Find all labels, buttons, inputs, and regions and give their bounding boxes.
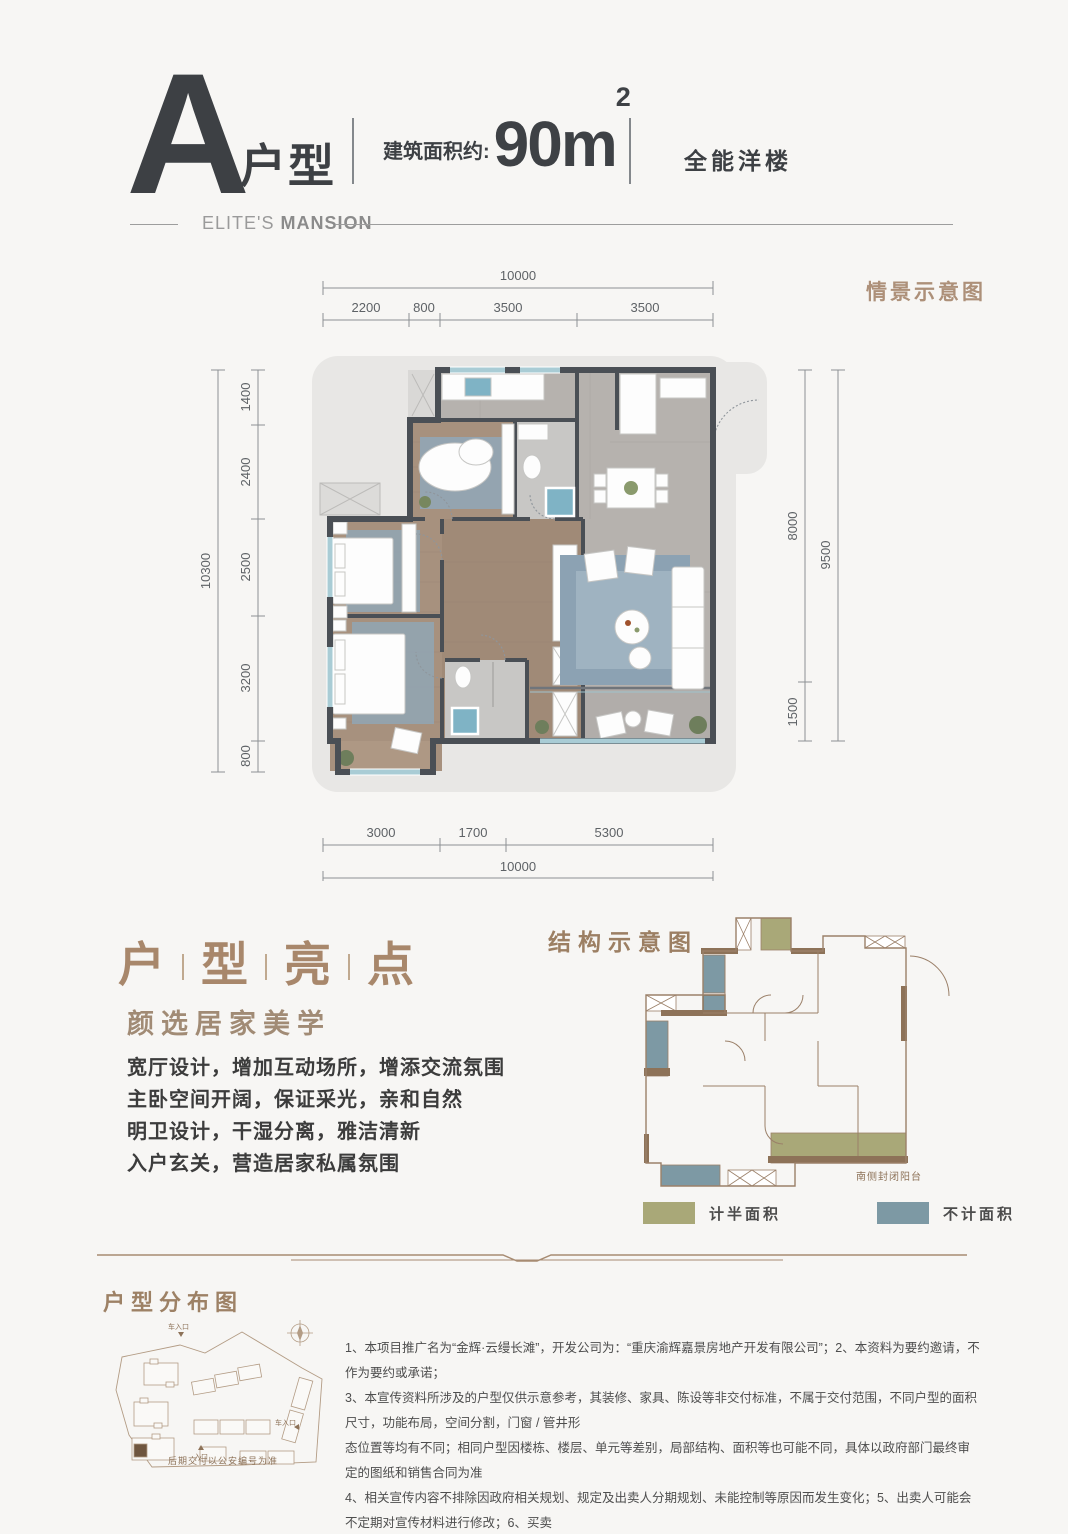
site-plan-svg: 车入口 车入口 入口 [92,1316,342,1468]
scene-label: 情景示意图 [866,276,986,306]
dim-top-3: 3500 [494,300,523,315]
disclaimer-line: 态位置等均有不同；相同户型因楼栋、楼层、单元等差别，局部结构、面积等也可能不同，… [345,1436,981,1486]
brand-line-right [335,224,953,225]
entry-label-right: 车入口 [275,1418,296,1427]
brand-light: ELITE'S [202,213,280,233]
structure-thick-walls [644,948,908,1163]
legend-item-half-area: 计半面积 [643,1202,781,1224]
title-separator [265,954,267,980]
unit-letter: A [126,64,246,205]
section-divider [95,1249,970,1265]
legend-swatch-half-area [643,1202,695,1224]
dim-right-2: 1500 [785,698,800,727]
disclaimer-line: 4、相关宣传内容不排除因政府相关规划、规定及出卖人分期规划、未能控制等原因而发生… [345,1486,981,1534]
dim-left-3: 2500 [238,553,253,582]
dim-left-total: 10300 [198,553,213,589]
dim-top-2: 800 [413,300,435,315]
dim-bottom-3: 5300 [595,825,624,840]
title-separator [182,954,184,980]
highlights-title-char: 亮 [284,943,331,990]
legend-item-excluded-area: 不计面积 [877,1202,1015,1224]
header-tagline: 全能洋楼 [684,142,792,176]
floor-plan-svg: 10000 2200 800 3500 3500 3000 1700 5300 … [180,262,870,882]
site-buildings [132,1359,313,1464]
living-room-furniture [560,546,704,689]
brochure-page: A 户型 建筑面积约: 90m2 全能洋楼 ELITE'S MANSION 情景… [0,0,1068,1534]
area-prefix: 建筑面积约: [383,135,490,176]
dim-right-1: 8000 [785,512,800,541]
disclaimer-line: 3、本宣传资料所涉及的户型仅供示意参考，其装修、家具、陈设等非交付标准，不属于交… [345,1386,981,1436]
entry-arrow-top [178,1332,184,1337]
structure-legend: 计半面积 不计面积 [643,1202,1015,1224]
distribution-title: 户型分布图 [103,1285,243,1317]
dim-bottom-2: 1700 [459,825,488,840]
structure-area-fills [646,918,906,1186]
dim-bottom-total: 10000 [500,859,536,874]
bedroom-a-furniture [419,424,514,514]
area-superscript: 2 [616,82,629,112]
dim-left-2: 2400 [238,458,253,487]
dim-top-1: 2200 [352,300,381,315]
highlights-list: 宽厅设计，增加互动场所，增添交流氛围 主卧空间开阔，保证采光，亲和自然 明卫设计… [127,1052,567,1180]
dim-left-1: 1400 [238,383,253,412]
site-entry-labels: 车入口 车入口 入口 [168,1322,299,1461]
header-divider-1 [352,118,354,184]
area-group: 建筑面积约: 90m2 [383,112,629,176]
dim-left-4: 3200 [238,664,253,693]
structure-interior-lines [703,951,949,1156]
unit-type-label: 户型 [240,130,336,196]
area-value: 90m2 [494,112,629,176]
brand-bold: MANSION [280,213,372,233]
highlighted-building [134,1444,147,1457]
structure-diagram-svg: 南侧封闭阳台 [618,896,952,1194]
structure-balcony-label: 南侧封闭阳台 [856,1170,922,1183]
dim-right-total: 9500 [818,541,833,570]
dim-top-total: 10000 [500,268,536,283]
highlights-subtitle: 颜选居家美学 [127,1002,331,1041]
legend-swatch-excluded-area [877,1202,929,1224]
dim-left-5: 800 [238,745,253,767]
title-separator [348,954,350,980]
highlight-item: 宽厅设计，增加互动场所，增添交流氛围 [127,1052,567,1084]
site-plan-caption: 后期交付以公安编号为准 [168,1454,278,1467]
header-divider-2 [629,118,631,184]
area-number: 90m [494,108,616,180]
highlights-title-char: 户 [118,943,165,990]
highlights-title-char: 点 [367,943,414,990]
disclaimer-block: 1、本项目推广名为“金辉·云缦长滩”，开发公司为：“重庆渝辉嘉景房地产开发有限公… [345,1336,981,1534]
highlights-title: 户 型 亮 点 [118,943,414,990]
dim-top-4: 3500 [631,300,660,315]
bedroom-b-furniture [333,522,420,618]
highlight-item: 明卫设计，干湿分离，雅洁清新 [127,1116,567,1148]
legend-label: 计半面积 [709,1203,781,1224]
highlight-item: 主卧空间开阔，保证采光，亲和自然 [127,1084,567,1116]
legend-label: 不计面积 [943,1203,1015,1224]
highlight-item: 入户玄关，营造居家私属氛围 [127,1148,567,1180]
disclaimer-line: 1、本项目推广名为“金辉·云缦长滩”，开发公司为：“重庆渝辉嘉景房地产开发有限公… [345,1336,981,1386]
highlights-title-char: 型 [201,943,248,990]
brand-line-left [130,224,178,225]
entry-label-top: 车入口 [168,1322,189,1331]
dim-bottom-1: 3000 [367,825,396,840]
compass-icon [287,1320,313,1346]
